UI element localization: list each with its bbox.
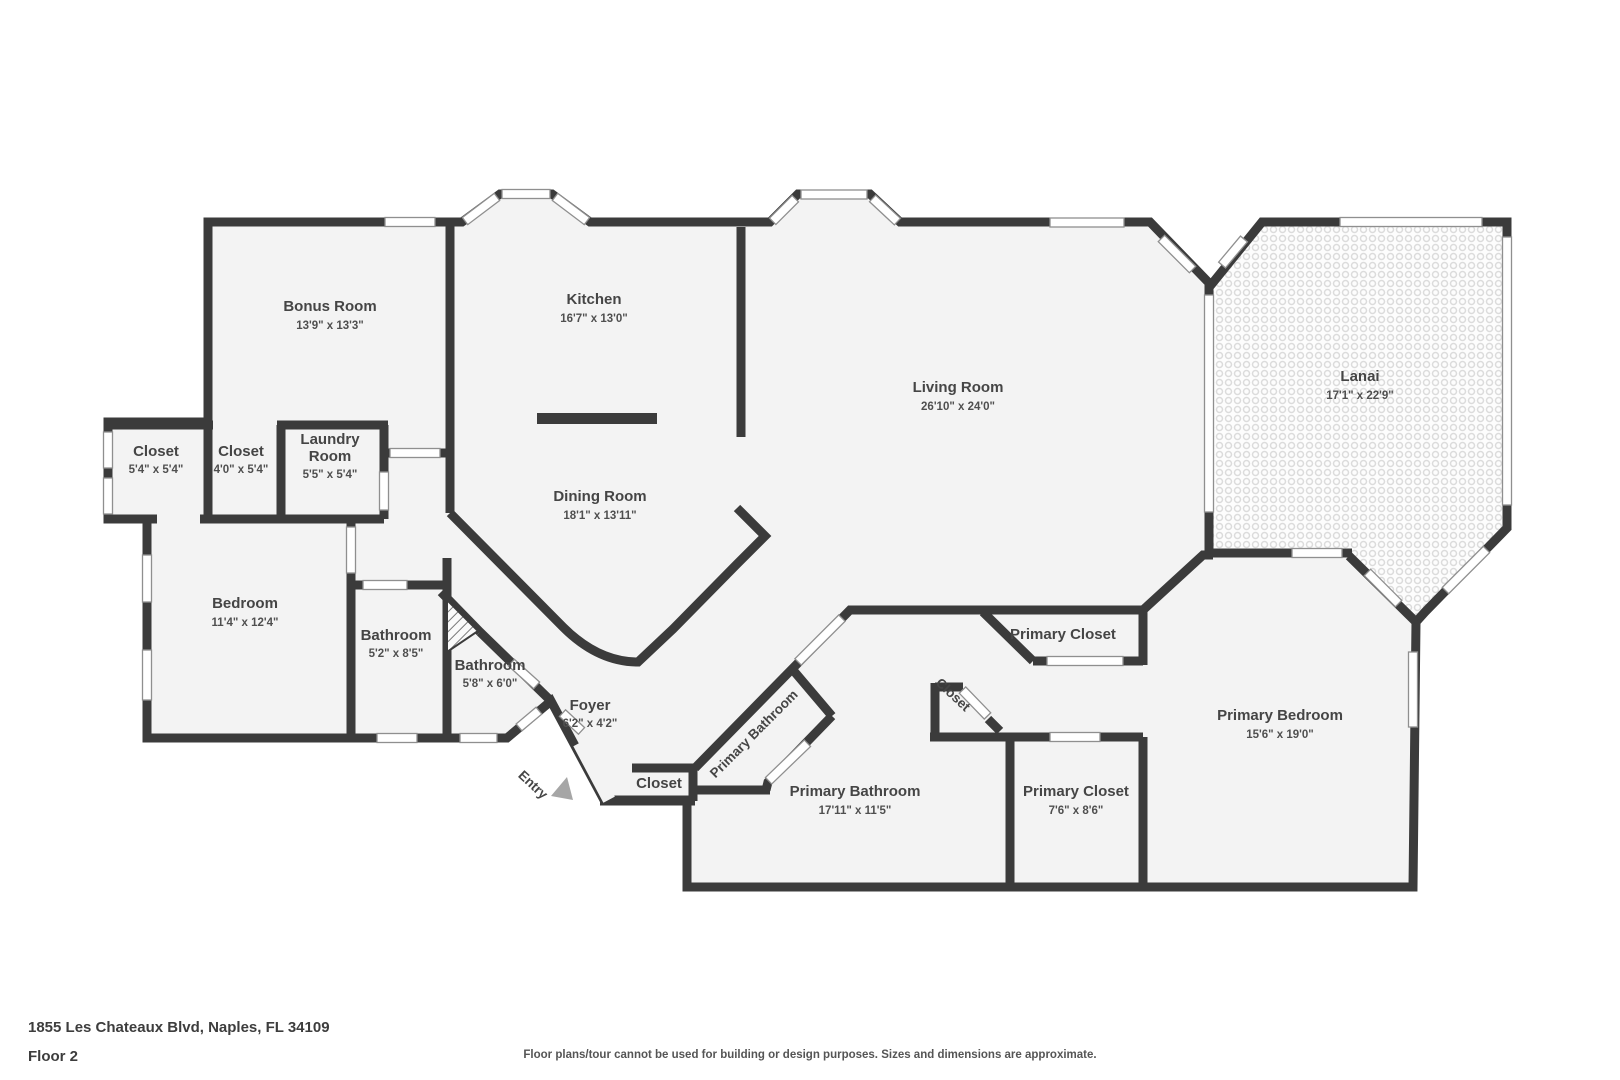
room-label-bathroom-2: Bathroom 5'8" x 6'0" [455, 657, 526, 690]
svg-text:5'2" x 8'5": 5'2" x 8'5" [369, 648, 424, 660]
svg-text:Primary Bedroom: Primary Bedroom [1217, 707, 1343, 724]
room-label-primary-closet-top: Primary Closet [1010, 626, 1116, 643]
svg-text:Dining Room: Dining Room [553, 488, 646, 505]
entry-arrow-icon [551, 777, 573, 800]
footer-address: 1855 Les Chateaux Blvd, Naples, FL 34109 [28, 1019, 330, 1036]
svg-text:17'11" x 11'5": 17'11" x 11'5" [819, 805, 892, 817]
room-label-foyer-closet: Closet [636, 775, 682, 792]
svg-text:Lanai: Lanai [1340, 368, 1379, 385]
svg-text:5'8" x 6'0": 5'8" x 6'0" [463, 678, 518, 690]
svg-text:17'1" x 22'9": 17'1" x 22'9" [1326, 390, 1394, 402]
footer: 1855 Les Chateaux Blvd, Naples, FL 34109… [28, 1019, 1097, 1065]
kitchen-island [537, 413, 657, 424]
room-label-bathroom-1: Bathroom 5'2" x 8'5" [361, 627, 432, 660]
svg-text:13'9" x 13'3": 13'9" x 13'3" [296, 320, 364, 332]
entry-label: Entry [515, 767, 551, 802]
svg-text:16'7" x 13'0": 16'7" x 13'0" [560, 313, 628, 325]
svg-text:5'5" x 5'4": 5'5" x 5'4" [303, 469, 358, 481]
svg-text:Bathroom: Bathroom [455, 657, 526, 674]
svg-text:Bonus Room: Bonus Room [283, 298, 376, 315]
footer-disclaimer: Floor plans/tour cannot be used for buil… [523, 1049, 1096, 1061]
svg-text:18'1" x 13'11": 18'1" x 13'11" [563, 510, 636, 522]
svg-text:Entry: Entry [515, 767, 551, 802]
svg-text:Foyer: Foyer [570, 697, 611, 714]
svg-text:4'0" x 5'4": 4'0" x 5'4" [214, 464, 269, 476]
svg-text:Bathroom: Bathroom [361, 627, 432, 644]
svg-text:Primary Closet: Primary Closet [1010, 626, 1116, 643]
room-label-foyer: Foyer 6'2" x 4'2" [563, 697, 618, 730]
svg-text:Closet: Closet [133, 443, 179, 460]
svg-text:7'6" x 8'6": 7'6" x 8'6" [1049, 805, 1104, 817]
svg-text:Primary Bathroom: Primary Bathroom [790, 783, 921, 800]
floor-plan-page: Bonus Room 13'9" x 13'3" Kitchen 16'7" x… [0, 0, 1620, 1080]
svg-text:Laundry: Laundry [300, 431, 360, 448]
svg-text:Bedroom: Bedroom [212, 595, 278, 612]
room-label-closet-2: Closet 4'0" x 5'4" [214, 443, 269, 476]
svg-text:Closet: Closet [218, 443, 264, 460]
svg-text:26'10" x 24'0": 26'10" x 24'0" [921, 401, 995, 413]
svg-text:15'6" x 19'0": 15'6" x 19'0" [1246, 729, 1314, 741]
footer-floor: Floor 2 [28, 1048, 78, 1065]
svg-text:6'2" x 4'2": 6'2" x 4'2" [563, 718, 618, 730]
svg-text:Primary Closet: Primary Closet [1023, 783, 1129, 800]
svg-text:Room: Room [309, 448, 352, 465]
svg-text:11'4" x 12'4": 11'4" x 12'4" [212, 617, 279, 629]
svg-text:5'4" x 5'4": 5'4" x 5'4" [129, 464, 184, 476]
svg-text:Closet: Closet [636, 775, 682, 792]
floor-plan-canvas: Bonus Room 13'9" x 13'3" Kitchen 16'7" x… [0, 0, 1620, 1080]
room-label-closet-1: Closet 5'4" x 5'4" [129, 443, 184, 476]
svg-text:Kitchen: Kitchen [566, 291, 621, 308]
svg-text:Living Room: Living Room [913, 379, 1004, 396]
